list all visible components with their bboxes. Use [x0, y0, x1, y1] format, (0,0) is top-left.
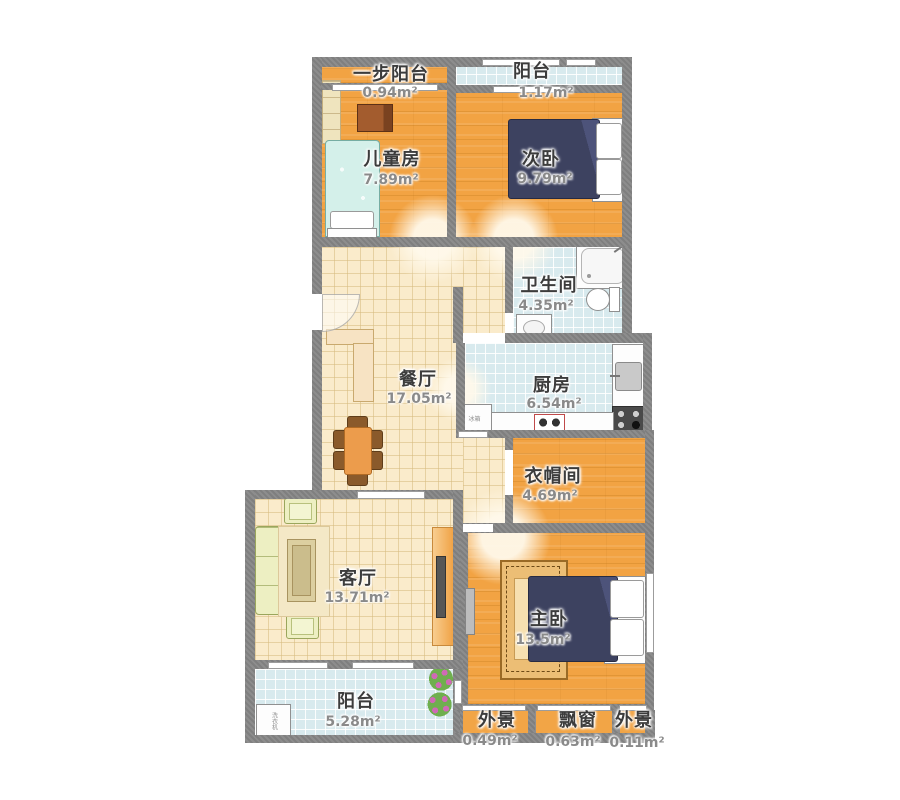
desk-icon [357, 104, 393, 132]
wall-segment [245, 490, 463, 499]
room-area-balcony-bottom: 5.28m² [325, 714, 380, 730]
armchair-cushion [291, 618, 314, 635]
wall-segment [505, 438, 513, 450]
room-label-living-room: 客厅 [339, 564, 377, 590]
wall-segment [456, 343, 465, 438]
wall-segment [447, 64, 456, 247]
room-area-bathroom: 4.35m² [518, 298, 573, 314]
dining-table-icon [344, 427, 372, 475]
master-bed-pillow-icon [610, 619, 644, 656]
window [646, 573, 654, 653]
room-label-balcony-bottom: 阳台 [337, 687, 375, 713]
toilet-bowl [586, 288, 610, 311]
room-label-one-step-balcony: 一步阳台 [353, 60, 429, 86]
wall-segment [505, 247, 513, 313]
room-label-balcony-top: 阳台 [513, 57, 551, 83]
room-label-dining-room: 餐厅 [399, 365, 437, 391]
kitchen-faucet [610, 375, 620, 377]
window [357, 491, 425, 499]
coffee-table-top [292, 545, 311, 596]
room-area-living-room: 13.71m² [324, 590, 389, 606]
master-door-opening [463, 524, 493, 532]
wall-segment [312, 237, 632, 247]
room-label-second-bedroom: 次卧 [522, 145, 560, 171]
wall-segment [312, 247, 322, 490]
wall-segment [245, 490, 255, 743]
toilet-icon [586, 287, 620, 311]
master-bed-pillow-icon [610, 580, 644, 618]
room-label-outer-view-right: 外景 [615, 706, 653, 732]
shower-drain [587, 274, 591, 278]
room-label-bathroom: 卫生间 [521, 271, 578, 297]
room-area-second-bedroom: 9.79m² [517, 171, 572, 187]
room-area-kids-room: 7.89m² [363, 172, 418, 188]
tv-icon [436, 556, 446, 618]
room-label-master-bedroom: 主卧 [530, 605, 568, 631]
room-label-kids-room: 儿童房 [364, 145, 421, 171]
room-label-outer-view-left: 外景 [478, 706, 516, 732]
coffee-table-icon [287, 539, 316, 602]
wall-segment [505, 495, 513, 524]
room-area-outer-view-left: 0.49m² [462, 733, 517, 749]
floor-plan: 冰箱 洗衣机 [0, 0, 900, 800]
wall-segment [643, 333, 652, 438]
entry-door-opening [312, 294, 322, 330]
room-area-one-step-balcony: 0.94m² [362, 85, 417, 101]
window [352, 662, 414, 669]
room-area-outer-view-right: 0.11m² [609, 735, 664, 751]
room-area-kitchen: 6.54m² [526, 396, 581, 412]
fridge-label: 冰箱 [468, 417, 480, 423]
room-area-cloakroom: 4.69m² [522, 488, 577, 504]
gas-stove-icon [612, 406, 645, 433]
master-door-leaf [465, 588, 475, 635]
cloakroom-door-opening [505, 450, 513, 495]
toilet-tank [609, 287, 620, 312]
wall-segment [528, 710, 535, 735]
wall-segment [245, 735, 463, 743]
kitchen-sink-icon [615, 362, 642, 391]
wall-segment [505, 333, 652, 343]
window [566, 59, 596, 66]
wall-segment [622, 57, 632, 343]
room-label-bay-window: 飘窗 [559, 706, 597, 732]
room-label-cloakroom: 衣帽间 [525, 462, 582, 488]
washing-machine-label: 洗衣机 [271, 712, 277, 730]
window [268, 662, 328, 669]
entry-cabinet-icon [353, 343, 374, 402]
room-area-bay-window: 0.63m² [545, 734, 600, 750]
wall-segment [453, 287, 463, 343]
washing-machine-icon: 洗衣机 [256, 704, 291, 737]
armchair-icon [284, 498, 317, 524]
second-bed-pillow-icon [596, 159, 622, 195]
cooktop-icon [534, 414, 565, 431]
window [454, 680, 462, 704]
second-bed-pillow-icon [596, 123, 622, 159]
kids-bed-pillow-icon [330, 211, 374, 229]
room-area-master-bedroom: 13.5m² [515, 632, 570, 648]
room-area-dining-room: 17.05m² [386, 391, 451, 407]
room-label-kitchen: 厨房 [533, 371, 571, 397]
wall-segment [453, 710, 460, 735]
bathroom-door-opening [505, 313, 513, 333]
armchair-cushion [289, 503, 312, 520]
plant-icon [423, 692, 455, 719]
plant-icon [426, 667, 456, 693]
room-area-balcony-top: 1.17m² [518, 85, 573, 101]
shower-tray [581, 248, 625, 284]
window [458, 431, 488, 438]
